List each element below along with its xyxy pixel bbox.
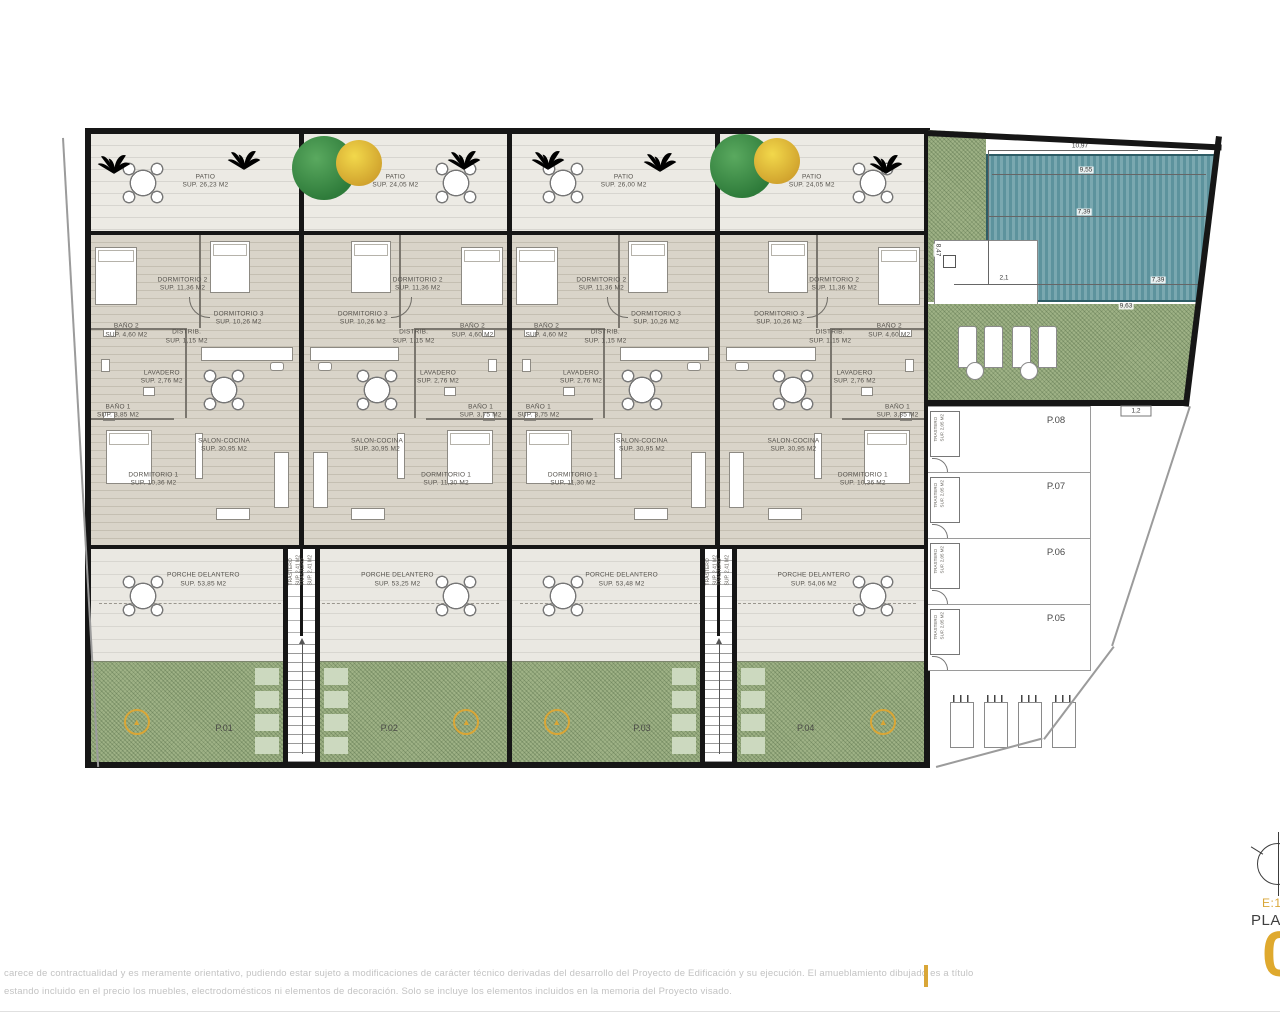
bed-icon	[628, 241, 668, 293]
outdoor-stall-icon	[950, 702, 974, 748]
palm-tree-icon	[868, 150, 904, 176]
washer-icon	[861, 387, 873, 396]
staircase-icon	[705, 636, 732, 762]
coffee-table-icon	[351, 508, 385, 520]
dining-table-icon	[354, 367, 400, 413]
room-label-bano1: BAÑO 1SUP. 3,75 M2	[517, 403, 559, 420]
floor-plan-page: { "units": [ {"id":"P.01", "patio":{"nam…	[0, 0, 1280, 1024]
palm-tree-icon	[96, 150, 132, 176]
stall-id-label: P.06	[1047, 547, 1065, 558]
room-label-dormitorio1: DORMITORIO 1SUP. 10,36 M2	[128, 471, 178, 488]
room-label-dormitorio2: DORMITORIO 2SUP. 11,36 M2	[158, 276, 208, 293]
room-label-dormitorio3: DORMITORIO 3SUP. 10,26 M2	[754, 310, 804, 327]
trastero-label: TRASTEROSUP. 2,05 M2	[933, 480, 946, 507]
tree-icon	[710, 132, 802, 204]
kitchen-counter-icon	[620, 347, 709, 361]
patio-label: PATIOSUP. 26,23 M2	[182, 173, 228, 190]
coffee-table-icon	[768, 508, 802, 520]
coffee-table-icon	[216, 508, 250, 520]
porche: PORCHE DELANTEROSUP. 53,85 M2	[91, 549, 299, 661]
bath-fixture-icon	[522, 359, 531, 372]
facade-wall	[91, 545, 924, 549]
coffee-table-icon	[634, 508, 668, 520]
washer-icon	[444, 387, 456, 396]
sofa-icon	[729, 452, 744, 508]
kitchen-counter-icon	[310, 347, 399, 361]
room-label-dormitorio1: DORMITORIO 1SUP. 10,36 M2	[838, 471, 888, 488]
unit-id-label: P.03	[633, 723, 650, 733]
dimension-label: 9,55	[1079, 167, 1094, 174]
room-label-lavadero: LAVADEROSUP. 2,76 M2	[141, 369, 183, 386]
plan-number-label: 0	[1262, 922, 1280, 986]
dimension-label: 7,39	[1077, 209, 1092, 216]
door-arc	[189, 297, 210, 318]
room-label-lavadero: LAVADEROSUP. 2,76 M2	[834, 369, 876, 386]
trastero-label: TRASTEROSUP. 2,05 M2	[933, 414, 946, 441]
planter-boxes	[741, 668, 765, 760]
washer-icon	[563, 387, 575, 396]
porche: PORCHE DELANTEROSUP. 54,06 M2	[720, 549, 924, 661]
sofa-icon	[691, 452, 706, 508]
scale-label: E:1	[1262, 896, 1280, 910]
door-arc	[807, 297, 828, 318]
outdoor-stall-icon	[984, 702, 1008, 748]
patio: PATIOSUP. 26,23 M2	[91, 134, 299, 231]
porche-label: PORCHE DELANTEROSUP. 53,48 M2	[585, 572, 658, 589]
dimension-line	[954, 284, 1204, 285]
room-label-bano2: BAÑO 2SUP. 4,60 M2	[451, 323, 493, 340]
door-arc	[391, 297, 412, 318]
unit-id-label: P.04	[797, 723, 814, 733]
sunbed-icon	[984, 326, 1003, 368]
room-label-lavadero: LAVADEROSUP. 2,76 M2	[560, 369, 602, 386]
porche-table-icon	[433, 573, 479, 619]
bath-fixture-icon	[101, 359, 110, 372]
bed-icon	[351, 241, 391, 293]
pool-platform	[934, 240, 1038, 306]
unit-id-label: P.01	[215, 723, 232, 733]
palm-tree-icon	[530, 146, 566, 172]
dimension-line	[992, 174, 1206, 175]
stall-id-label: P.05	[1047, 613, 1065, 624]
room-label-dormitorio3: DORMITORIO 3SUP. 10,26 M2	[338, 310, 388, 327]
stair-core: TRASTEROSUP. 2,41 M2 TRASTEROSUP. 2,41 M…	[700, 549, 737, 762]
stall-id-label: P.07	[1047, 481, 1065, 492]
kitchen-counter-icon	[726, 347, 816, 361]
patio-label: PATIOSUP. 26,00 M2	[601, 173, 647, 190]
room-label-bano1: BAÑO 1SUP. 3,75 M2	[460, 403, 502, 420]
garden-marker-icon	[124, 709, 150, 735]
door-arc	[607, 297, 628, 318]
unit-interior: DORMITORIO 2SUP. 11,36 M2 DORMITORIO 3SU…	[512, 235, 715, 545]
room-label-dormitorio2: DORMITORIO 2SUP. 11,36 M2	[809, 276, 859, 293]
room-label-bano1: BAÑO 1SUP. 3,85 M2	[97, 403, 139, 420]
garden-marker-icon	[453, 709, 479, 735]
porche: PORCHE DELANTEROSUP. 53,25 M2	[304, 549, 507, 661]
trastero-closet: TRASTEROSUP. 2,05 M2	[930, 477, 960, 523]
porche-label: PORCHE DELANTEROSUP. 54,06 M2	[778, 572, 851, 589]
dimension-label: 1,2	[1120, 406, 1151, 417]
room-label-bano2: BAÑO 2SUP. 4,60 M2	[525, 323, 567, 340]
door-arc	[932, 590, 948, 604]
bed-icon	[768, 241, 808, 293]
palm-tree-icon	[642, 148, 678, 174]
tree-icon	[292, 134, 384, 206]
compass-icon	[1257, 843, 1280, 885]
footer-gold-marker	[924, 965, 928, 987]
garden-marker-icon	[544, 709, 570, 735]
bath-fixture-icon	[488, 359, 497, 372]
staircase-icon	[288, 636, 315, 762]
door-arc	[932, 656, 948, 670]
trastero-label: TRASTEROSUP. 2,05 M2	[933, 546, 946, 573]
parking-stall: P.07 TRASTEROSUP. 2,05 M2	[928, 472, 1090, 538]
sofa-icon	[313, 452, 328, 508]
sink-icon	[687, 362, 701, 371]
trastero-label: TRASTEROSUP. 2,05 M2	[933, 612, 946, 639]
dining-table-icon	[770, 367, 816, 413]
bath-fixture-icon	[905, 359, 914, 372]
trastero-closet: TRASTEROSUP. 2,05 M2	[930, 609, 960, 655]
sunbed-icon	[1038, 326, 1057, 368]
room-label-dormitorio2: DORMITORIO 2SUP. 11,36 M2	[576, 276, 626, 293]
bed-icon	[210, 241, 250, 293]
bed-icon	[461, 247, 503, 305]
planter-boxes	[255, 668, 279, 760]
room-label-dormitorio3: DORMITORIO 3SUP. 10,26 M2	[214, 310, 264, 327]
room-label-lavadero: LAVADEROSUP. 2,76 M2	[417, 369, 459, 386]
planter-boxes	[672, 668, 696, 760]
unit-interior: DORMITORIO 2SUP. 11,36 M2 DORMITORIO 3SU…	[91, 235, 299, 545]
parking-stall: P.06 TRASTEROSUP. 2,05 M2	[928, 538, 1090, 604]
trastero-closet: TRASTEROSUP. 2,05 M2	[930, 411, 960, 457]
room-label-dormitorio2: DORMITORIO 2SUP. 11,36 M2	[393, 276, 443, 293]
porche-table-icon	[540, 573, 586, 619]
stair-core: TRASTEROSUP. 2,41 M2 TRASTEROSUP. 2,41 M…	[283, 549, 320, 762]
porche-label: PORCHE DELANTEROSUP. 53,25 M2	[361, 572, 434, 589]
stall-id-label: P.08	[1047, 415, 1065, 426]
porche-table-icon	[850, 573, 896, 619]
washer-icon	[143, 387, 155, 396]
room-label-bano2: BAÑO 2SUP. 4,60 M2	[105, 323, 147, 340]
kitchen-counter-icon	[201, 347, 293, 361]
room-label-distrib: DISTRIB.SUP. 1,15 M2	[809, 329, 851, 346]
bed-icon	[95, 247, 137, 305]
palm-tree-icon	[226, 146, 262, 172]
room-label-dormitorio1: DORMITORIO 1SUP. 11,30 M2	[548, 471, 598, 488]
room-label-dormitorio1: DORMITORIO 1SUP. 11,30 M2	[421, 471, 471, 488]
parking-stall: P.05 TRASTEROSUP. 2,05 M2	[928, 604, 1090, 670]
porche: PORCHE DELANTEROSUP. 53,48 M2	[512, 549, 715, 661]
side-table-icon	[1020, 362, 1038, 380]
bed-icon	[878, 247, 920, 305]
porche-label: PORCHE DELANTEROSUP. 53,85 M2	[167, 572, 240, 589]
dimension-label: 8,47	[934, 244, 943, 257]
dining-table-icon	[201, 367, 247, 413]
door-arc	[932, 458, 948, 472]
room-label-bano1: BAÑO 1SUP. 3,85 M2	[876, 403, 918, 420]
bed-icon	[516, 247, 558, 305]
room-label-salon-cocina: SALON-COCINASUP. 30,95 M2	[198, 437, 250, 454]
trastero-label: TRASTEROSUP. 2,41 M2	[300, 555, 315, 585]
unit-id-label: P.02	[381, 723, 398, 733]
disclaimer-line1: carece de contractualidad y es meramente…	[4, 968, 1280, 979]
side-table-icon	[966, 362, 984, 380]
garden-marker-icon	[870, 709, 896, 735]
trastero-closet: TRASTEROSUP. 2,05 M2	[930, 543, 960, 589]
room-label-distrib: DISTRIB.SUP. 1,15 M2	[584, 329, 626, 346]
sofa-icon	[274, 452, 289, 508]
sunbathing-lawn	[928, 304, 1220, 406]
dining-table-icon	[619, 367, 665, 413]
unit-interior: DORMITORIO 2SUP. 11,36 M2 DORMITORIO 3SU…	[720, 235, 924, 545]
room-label-salon-cocina: SALON-COCINASUP. 30,95 M2	[767, 437, 819, 454]
planter-boxes	[324, 668, 348, 760]
dimension-line	[988, 216, 1206, 217]
sink-icon	[318, 362, 332, 371]
palm-tree-icon	[446, 146, 482, 172]
room-label-bano2: BAÑO 2SUP. 4,60 M2	[868, 323, 910, 340]
dimension-label: 2,1	[998, 275, 1009, 282]
dimension-label: 9,63	[1119, 303, 1134, 310]
room-label-distrib: DISTRIB.SUP. 1,15 M2	[166, 329, 208, 346]
outdoor-stalls	[950, 702, 1090, 754]
sink-icon	[735, 362, 749, 371]
footer-divider	[0, 1011, 1280, 1012]
property-boundary-line	[1111, 406, 1190, 646]
facade-wall	[91, 231, 924, 235]
room-label-dormitorio3: DORMITORIO 3SUP. 10,26 M2	[631, 310, 681, 327]
trastero-label: TRASTEROSUP. 2,41 M2	[717, 555, 732, 585]
parking-area: P.08 TRASTEROSUP. 2,05 M2 P.07 TRASTEROS…	[928, 406, 1091, 671]
porche-table-icon	[120, 573, 166, 619]
building: PATIOSUP. 26,23 M2	[85, 128, 930, 768]
dimension-line	[988, 150, 1198, 151]
disclaimer-line2: estando incluido en el precio los mueble…	[4, 986, 1280, 997]
dimension-label: 7,39	[1151, 277, 1166, 284]
door-arc	[932, 524, 948, 538]
parking-stall: P.08 TRASTEROSUP. 2,05 M2	[928, 406, 1090, 472]
room-label-salon-cocina: SALON-COCINASUP. 30,95 M2	[616, 437, 668, 454]
unit-interior: DORMITORIO 2SUP. 11,36 M2 DORMITORIO 3SU…	[304, 235, 507, 545]
sink-icon	[270, 362, 284, 371]
party-wall	[507, 134, 512, 762]
pool-area: 10,97 9,55 7,39 2,1 7,39 9,63 8,47	[928, 130, 1220, 406]
room-label-distrib: DISTRIB.SUP. 1,15 M2	[393, 329, 435, 346]
dimension-line	[988, 150, 989, 284]
room-label-salon-cocina: SALON-COCINASUP. 30,95 M2	[351, 437, 403, 454]
